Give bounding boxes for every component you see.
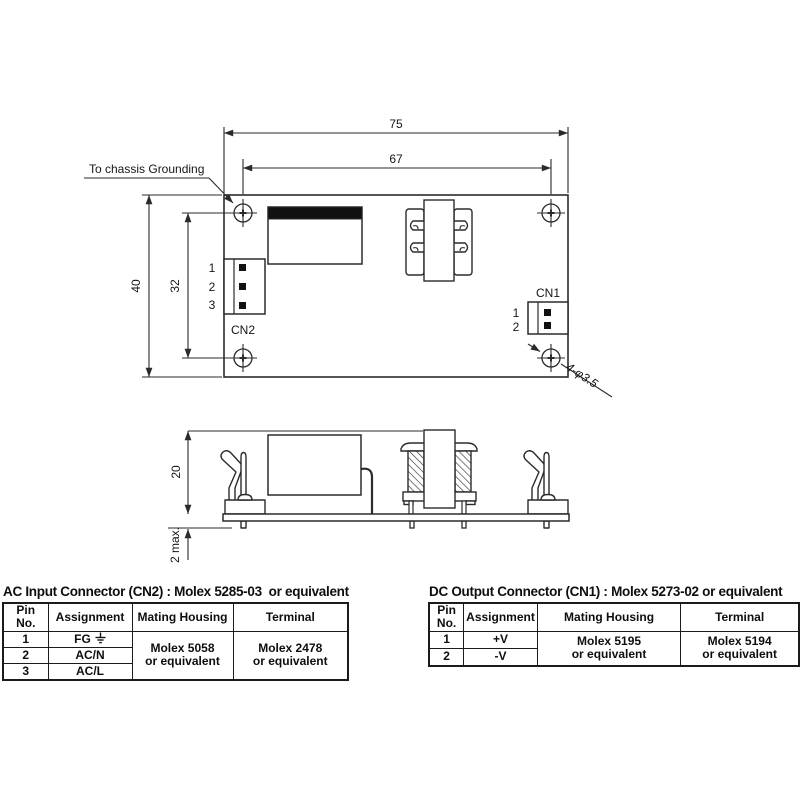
transformer-side-view [401,430,477,514]
dim-20-label: 20 [169,465,183,479]
assignment-cell: +V [464,631,538,648]
pin-number-cell: 2 [429,648,464,666]
table-row: 1 +V Molex 5195 or equivalent Molex 5194… [429,631,799,648]
assignment-cell: AC/L [48,663,132,680]
col-header-mating-housing: Mating Housing [132,603,233,631]
fg-label: FG [74,632,91,646]
assignment-cell: FG [48,631,132,647]
pin-number-cell: 2 [3,647,48,663]
mating-housing-line2: or equivalent [135,655,231,668]
ac-input-table-section: AC Input Connector (CN2) : Molex 5285-03… [2,584,349,681]
transformer-winding-right [455,451,471,492]
terminal-line1: Molex 5194 [683,635,796,648]
cn2-label: CN2 [231,323,255,337]
cn2-pin1-label: 1 [209,261,216,275]
grounding-leader [84,178,233,203]
col-header-pin-no: Pin No. [3,603,48,631]
dim-75-label: 75 [389,117,403,131]
cn2-pin3-pad [239,302,246,309]
cn2-connector [224,259,265,314]
terminal-line1: Molex 2478 [236,642,346,655]
solder-pins [410,521,466,528]
transformer-winding-left [408,451,424,492]
terminal-line2: or equivalent [683,648,796,661]
cn2-pin2-pad [239,283,246,290]
cn2-pin1-pad [239,264,246,271]
dim-32-label: 32 [168,279,182,293]
pcb-outline-side [223,514,569,521]
col-header-mating-housing: Mating Housing [537,603,680,631]
pin-number-cell: 1 [429,631,464,648]
table-header-row: Pin No. Assignment Mating Housing Termin… [3,603,348,631]
cn1-label: CN1 [536,286,560,300]
dim-2max-label: 2 max. [168,527,182,563]
top-view: 75 67 40 32 [84,117,612,397]
mechanical-drawing: 75 67 40 32 [0,0,800,578]
mating-housing-line1: Molex 5058 [135,642,231,655]
mating-housing-line1: Molex 5195 [540,635,678,648]
pin-number-cell: 3 [3,663,48,680]
pin-number-cell: 1 [3,631,48,647]
assignment-cell: -V [464,648,538,666]
transformer-top-view [406,200,472,281]
transformer-wing-right [454,209,472,275]
cn1-pin1-label: 1 [513,306,520,320]
mating-housing-cell: Molex 5195 or equivalent [537,631,680,666]
earth-ground-icon [95,632,106,644]
grounding-label: To chassis Grounding [89,162,204,176]
cn1-pin2-pad [544,322,551,329]
dim-40-label: 40 [129,279,143,293]
col-header-terminal: Terminal [233,603,348,631]
capacitor-side-view [268,435,361,495]
cn2-pin3-label: 3 [209,298,216,312]
terminal-cell: Molex 5194 or equivalent [681,631,799,666]
assignment-cell: AC/N [48,647,132,663]
component-lead-wire [361,469,372,514]
transformer-core [424,200,454,281]
ac-table-title: AC Input Connector (CN2) : Molex 5285-03… [3,584,349,599]
cn2-pin2-label: 2 [209,280,216,294]
cn1-pin2-label: 2 [513,320,520,334]
dc-table-title: DC Output Connector (CN1) : Molex 5273-0… [429,584,800,599]
side-view: 20 2 max. [168,430,569,563]
col-header-pin-no: Pin No. [429,603,464,631]
transformer-wing-left [406,209,424,275]
mating-housing-line2: or equivalent [540,648,678,661]
dim-67-label: 67 [389,152,403,166]
dc-output-table: Pin No. Assignment Mating Housing Termin… [428,602,800,667]
terminal-line2: or equivalent [236,655,346,668]
dc-output-table-section: DC Output Connector (CN1) : Molex 5273-0… [428,584,800,667]
mating-housing-cell: Molex 5058 or equivalent [132,631,233,680]
cn1-pin1-pad [544,309,551,316]
col-header-assignment: Assignment [48,603,132,631]
datasheet-page: 75 67 40 32 [0,0,800,800]
cn1-connector [528,302,568,334]
col-header-assignment: Assignment [464,603,538,631]
ac-input-table: Pin No. Assignment Mating Housing Termin… [2,602,349,681]
table-header-row: Pin No. Assignment Mating Housing Termin… [429,603,799,631]
capacitor-top-view [268,207,362,264]
terminal-cell: Molex 2478 or equivalent [233,631,348,680]
col-header-terminal: Terminal [681,603,799,631]
table-row: 1 FG Molex 5058 or equivalent Molex 2478… [3,631,348,647]
transformer-bobbin [424,430,455,508]
hole-size-label: 4-φ3.5 [563,360,600,391]
